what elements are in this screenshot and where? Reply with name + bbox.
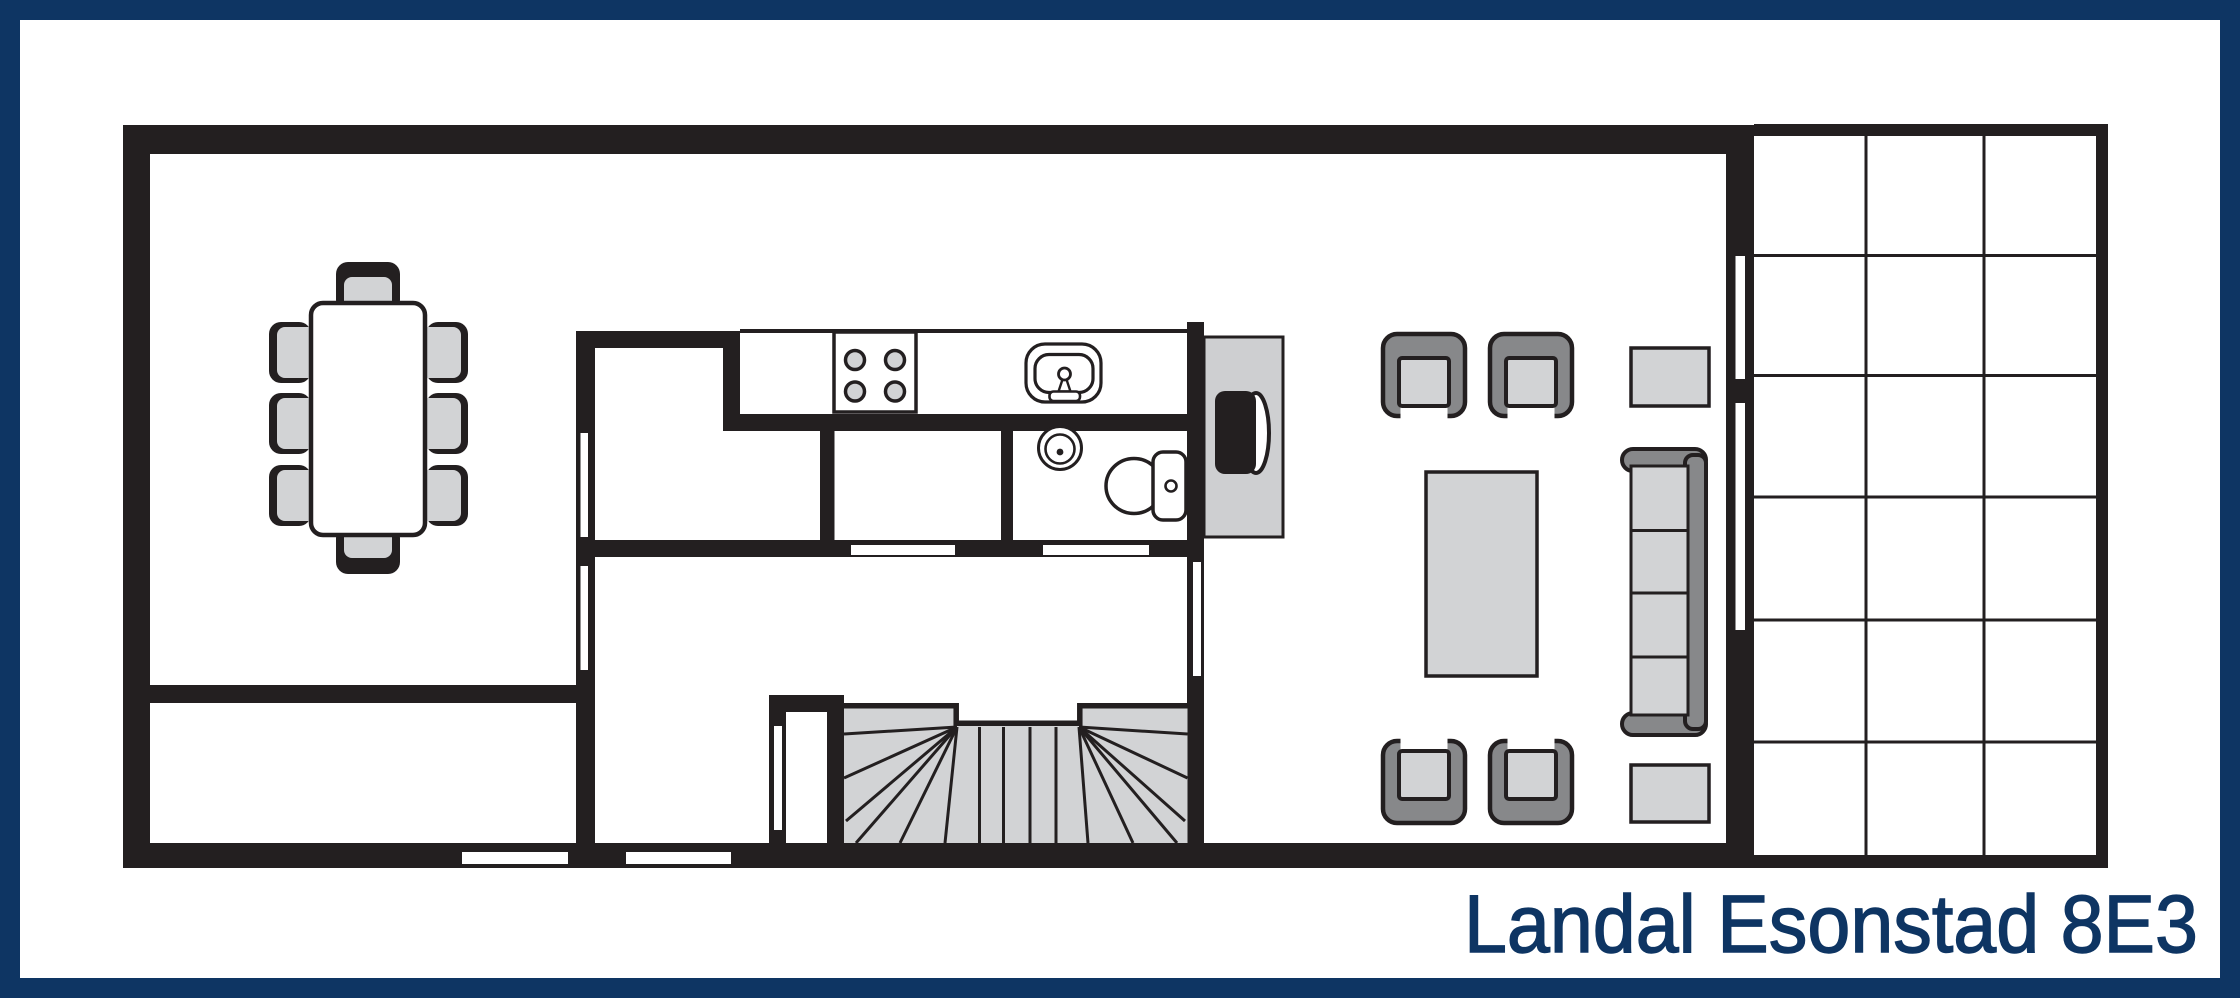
svg-text:Landal Esonstad 8E3: Landal Esonstad 8E3 (1464, 879, 2198, 970)
